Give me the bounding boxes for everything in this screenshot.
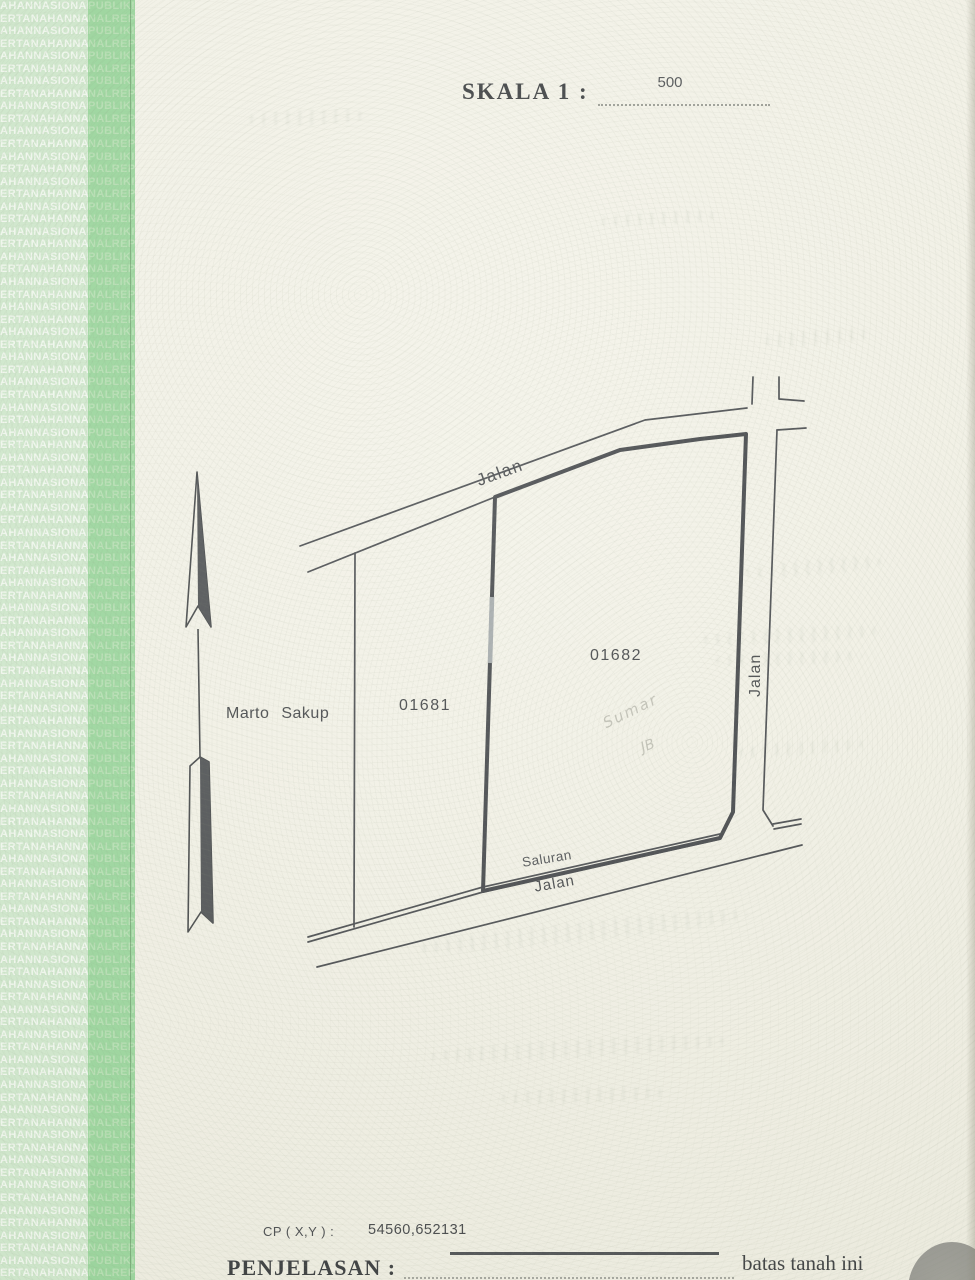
road-top-upper-edge <box>300 408 747 546</box>
road-east-south-edge <box>777 428 806 430</box>
road-label-right: Jalan <box>747 654 765 697</box>
ditch-double-line-lower <box>308 839 720 942</box>
cadastral-map-drawing <box>0 0 975 1280</box>
junction-stub-left <box>752 377 753 404</box>
north-arrow-icon <box>186 472 213 932</box>
ditch-double-line-east <box>773 819 801 829</box>
road-right-east-edge <box>763 430 777 826</box>
junction-stub-right <box>779 377 804 401</box>
parcel-id-01682: 01682 <box>590 647 642 665</box>
parcel-01681-west-boundary <box>354 553 355 927</box>
page-right-edge-shadow <box>966 0 975 1280</box>
scanned-survey-document-page: AHANNASIONALREPUBLIKINDONESIERTANAHANNAS… <box>0 0 975 1280</box>
parcel-id-01681: 01681 <box>399 697 451 715</box>
parcel-boundary-faded-segment <box>490 597 492 663</box>
owner-name-label: Marto Sakup <box>226 705 329 723</box>
footer-divider-line <box>450 1252 719 1255</box>
